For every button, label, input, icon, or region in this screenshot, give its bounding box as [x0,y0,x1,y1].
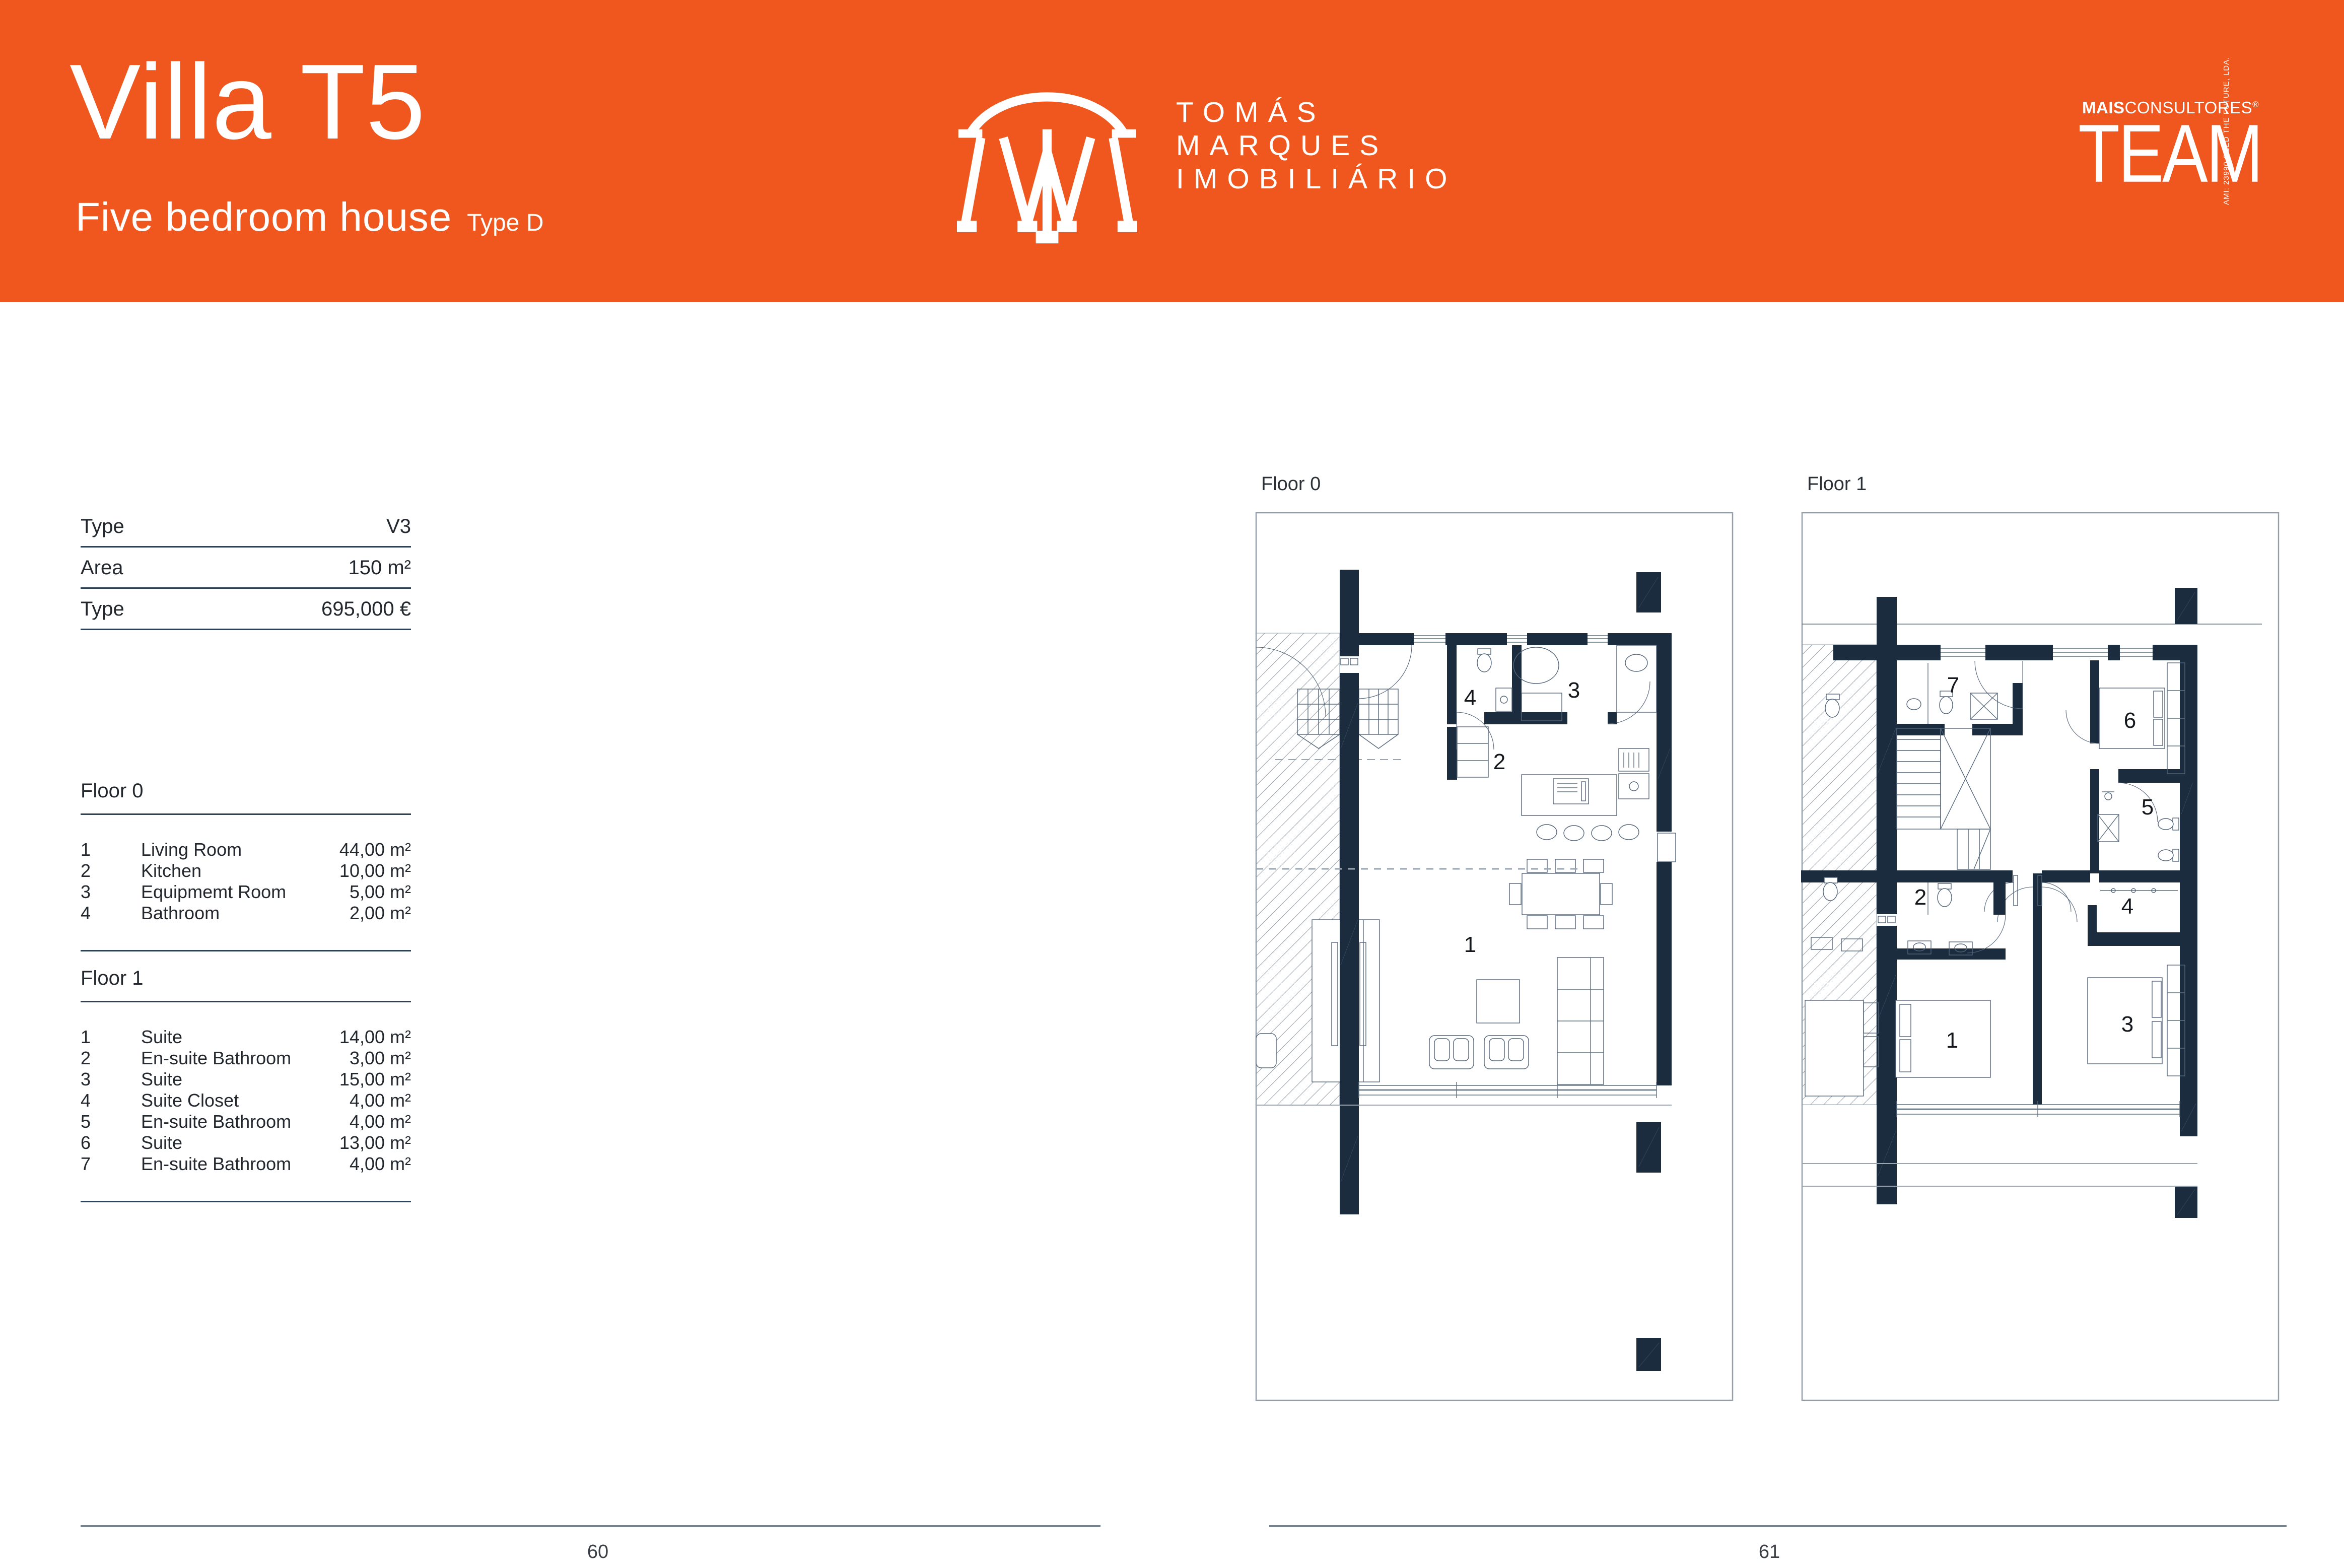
floor0-room-list: 1Living Room44,00 m²2Kitchen10,00 m²3Equ… [81,839,411,924]
room-num: 1 [81,1027,141,1048]
plan1-title: Floor 1 [1807,473,1867,495]
room-name: En-suite Bathroom [141,1111,350,1132]
bed [1896,1000,1990,1077]
room-number-label: 4 [2121,894,2133,919]
agency-name-line3: IMOBILIÁRIO [1176,162,1457,195]
stool-icon [1564,826,1584,841]
room-area: 14,00 m² [339,1027,411,1048]
kitchen-island [1522,775,1639,841]
room-num: 4 [81,1090,141,1111]
sink-icon [1907,699,1921,710]
room-row: 7En-suite Bathroom4,00 m² [81,1153,411,1175]
floor1-room-section: Floor 1 1Suite14,00 m²2En-suite Bathroom… [81,967,411,1202]
spec-label: Type [81,515,124,538]
divider [81,1001,411,1002]
toilet-icon [2173,818,2179,830]
room-num: 1 [81,839,141,860]
subtitle-type-tag: Type D [467,210,543,236]
room-number-label: 1 [1946,1028,1958,1053]
sink-icon [1496,688,1512,711]
stairs [1897,728,1990,869]
spec-table: Type V3 Area 150 m² Type 695,000 € [81,507,411,630]
floor0-plan: 4321 [1255,512,1734,1401]
room-area: 15,00 m² [339,1069,411,1090]
room-number-label: 3 [2121,1012,2133,1037]
room-name: Bathroom [141,903,350,924]
team-side-text: AMI: 23990 SEED THE FUTURE, LDA. [2222,129,2231,205]
room-number-label: 3 [1568,678,1580,703]
room-area: 4,00 m² [350,1090,411,1111]
subtitle: Five bedroom house [76,194,452,239]
room-num: 5 [81,1111,141,1132]
divider [81,950,411,951]
room-row: 1Living Room44,00 m² [81,839,411,860]
floor0-room-section: Floor 0 1Living Room44,00 m²2Kitchen10,0… [81,780,411,951]
room-area: 3,00 m² [350,1048,411,1069]
room-row: 6Suite13,00 m² [81,1132,411,1153]
spec-value: 150 m² [349,557,411,579]
spec-row-area: Area 150 m² [81,548,411,589]
room-area: 13,00 m² [339,1132,411,1153]
room-area: 4,00 m² [350,1153,411,1175]
floor1-plan: 7652413 [1801,512,2280,1401]
room-num: 2 [81,1048,141,1069]
room-row: 2En-suite Bathroom3,00 m² [81,1048,411,1069]
party-wall [1877,597,1897,1204]
room-num: 7 [81,1153,141,1175]
spec-row-price: Type 695,000 € [81,589,411,630]
agency-name: TOMÁS MARQUES IMOBILIÁRIO [1176,96,1457,195]
exterior-wall-right [1636,633,1676,1371]
plan0-title: Floor 0 [1261,473,1321,495]
bathroom7 [1897,661,2023,735]
room-name: Suite [141,1132,339,1153]
room-row: 4Suite Closet4,00 m² [81,1090,411,1111]
divider [81,813,411,815]
kitchen-counter [1617,645,1657,799]
room-number-label: 1 [1464,932,1476,958]
header-band: Villa T5 Five bedroom houseType D [0,0,2344,302]
spec-value: V3 [386,515,411,538]
brochure-spread: Villa T5 Five bedroom houseType D [0,0,2344,1568]
room-row: 3Suite15,00 m² [81,1069,411,1090]
spec-value: 695,000 € [321,598,411,621]
sofa [1557,958,1604,1084]
room-name: Equipmemt Room [141,881,350,903]
room-area: 4,00 m² [350,1111,411,1132]
room-area: 2,00 m² [350,903,411,924]
room-name: En-suite Bathroom [141,1048,350,1069]
room-number-label: 4 [1464,686,1476,711]
spec-label: Type [81,598,124,621]
page-number-right: 61 [1747,1541,1792,1563]
room-area: 44,00 m² [339,839,411,860]
room-num: 6 [81,1132,141,1153]
agency-name-line1: TOMÁS [1176,96,1457,129]
dining-table [1509,859,1612,929]
bathroom2 [1897,882,2006,960]
agency-name-line2: MARQUES [1176,129,1457,162]
room-name: Living Room [141,839,339,860]
footer-rule-right [1269,1525,2287,1527]
room-name: Suite [141,1027,339,1048]
room-number-label: 5 [2142,795,2154,820]
room-name: Kitchen [141,860,339,881]
hall-cabinet [1457,727,1488,777]
room-row: 1Suite14,00 m² [81,1027,411,1048]
room-number-label: 2 [1493,749,1505,775]
room-number-label: 6 [2124,708,2136,733]
room-area: 5,00 m² [350,881,411,903]
floor0-plan-drawing [1255,512,1734,1401]
room-name: Suite Closet [141,1090,350,1111]
stool-icon [1537,825,1557,840]
party-wall [1340,570,1359,1214]
tm-monogram-icon [954,79,1140,245]
spec-label: Area [81,557,123,579]
room-num: 4 [81,903,141,924]
stool-icon [1592,826,1612,841]
room-num: 3 [81,1069,141,1090]
kitchen-sink-icon [1625,654,1647,671]
coffee-table [1477,980,1520,1023]
bathroom5 [2090,783,2179,873]
subtitle-row: Five bedroom houseType D [76,194,543,240]
room-name: Suite [141,1069,339,1090]
page-title: Villa T5 [70,48,426,155]
floor1-plan-drawing [1801,512,2280,1401]
room-row: 5En-suite Bathroom4,00 m² [81,1111,411,1132]
footer-rule-left [81,1525,1100,1527]
room-num: 2 [81,860,141,881]
exterior-wall-top [1359,633,1657,645]
floor1-room-list: 1Suite14,00 m²2En-suite Bathroom3,00 m²3… [81,1027,411,1175]
window-band [1359,1082,1657,1098]
stool-icon [1619,825,1639,840]
oven-icon [1619,774,1649,799]
team-wordmark: TEAM [2078,112,2261,194]
room-number-label: 7 [1947,673,1959,698]
bidet-icon [2173,849,2179,861]
closet4 [2088,889,2182,946]
section-title: Floor 0 [81,780,411,802]
room-row: 2Kitchen10,00 m² [81,860,411,881]
page-number-left: 60 [575,1541,621,1563]
spec-row-type: Type V3 [81,507,411,548]
room-name: En-suite Bathroom [141,1153,350,1175]
room-num: 3 [81,881,141,903]
toilet-icon [1477,649,1491,672]
room-number-label: 2 [1914,885,1926,910]
suite1 [1896,1000,1990,1077]
room-row: 4Bathroom2,00 m² [81,903,411,924]
room-row: 3Equipmemt Room5,00 m² [81,881,411,903]
sink-icon [2105,793,2112,800]
suite3 [2088,965,2185,1076]
section-title: Floor 1 [81,967,411,990]
divider [81,1201,411,1202]
room-area: 10,00 m² [339,860,411,881]
